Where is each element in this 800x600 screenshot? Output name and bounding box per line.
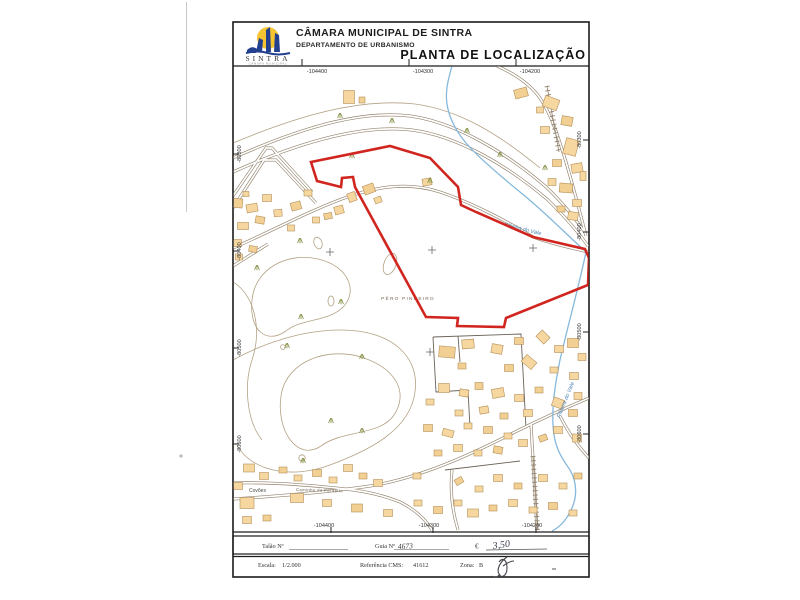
building <box>384 510 393 517</box>
building <box>246 203 258 213</box>
reference-label: Referência CMS: <box>360 562 403 569</box>
building <box>454 476 464 485</box>
grid-label-left: -80300 <box>237 145 243 162</box>
building <box>434 450 442 456</box>
grid-label-left: -80600 <box>237 435 243 452</box>
building <box>234 483 243 490</box>
stream-label-1: Ribeira do Vale <box>504 222 542 237</box>
building <box>244 464 255 472</box>
grid-cross-icon <box>428 246 436 254</box>
building <box>521 354 537 369</box>
grid-label-left: -80500 <box>237 339 243 356</box>
building <box>249 245 258 252</box>
building <box>468 509 479 517</box>
hatched-path-icon <box>533 86 559 530</box>
building <box>290 201 302 211</box>
grid-label-right: -80500 <box>577 323 583 340</box>
building <box>538 434 548 442</box>
building <box>288 225 295 231</box>
building <box>553 160 562 167</box>
building <box>494 475 503 482</box>
building <box>491 344 503 355</box>
tuft-icon <box>299 314 304 319</box>
building <box>491 388 504 399</box>
building <box>573 200 582 207</box>
building <box>291 494 304 503</box>
building <box>458 363 466 369</box>
building <box>475 486 483 492</box>
building <box>504 433 512 439</box>
building <box>255 216 265 224</box>
tuft-icon <box>329 418 334 423</box>
building <box>554 427 563 434</box>
building <box>313 217 320 223</box>
grid-cross-icon <box>529 244 537 252</box>
building <box>515 338 524 345</box>
building <box>569 510 577 516</box>
building <box>454 445 463 452</box>
building <box>574 473 582 479</box>
building <box>479 406 489 414</box>
building <box>434 507 443 514</box>
building <box>344 91 355 104</box>
building <box>263 195 272 202</box>
building <box>459 389 469 397</box>
building <box>549 503 558 510</box>
talao-label: Talão Nº <box>262 543 284 550</box>
grid-label-top: -104400 <box>307 69 328 75</box>
scanned-location-plan: SINTRA CÂMARA MUNICIPAL CÂMARA MUNICIPAL… <box>0 0 800 600</box>
building <box>243 517 252 524</box>
building <box>559 483 567 489</box>
building <box>514 483 522 489</box>
contour-lines <box>233 103 540 472</box>
building <box>464 423 472 429</box>
tuft-icon <box>543 165 548 170</box>
building <box>424 425 433 432</box>
building <box>442 428 454 438</box>
building <box>550 367 558 373</box>
building <box>580 172 586 181</box>
grid-label-right: -80600 <box>577 425 583 442</box>
building <box>455 410 463 416</box>
header: SINTRA CÂMARA MUNICIPAL CÂMARA MUNICIPAL… <box>245 26 586 66</box>
grid-cross-icon <box>426 348 434 356</box>
building <box>374 196 383 204</box>
building <box>493 446 503 454</box>
grid-label-right: -80400 <box>577 223 583 240</box>
grid-label-top: -104300 <box>413 69 434 75</box>
footer: Talão Nº Guia Nº 4673 € 3,50 Escala: 1/2… <box>233 536 589 577</box>
building <box>426 399 434 405</box>
building <box>515 395 524 402</box>
map-area: PÊRO PINHEIRO Covões Caminho do Perapito… <box>229 66 589 531</box>
building <box>279 467 287 473</box>
building <box>439 384 450 393</box>
building <box>541 127 550 134</box>
logo-tower-icon <box>256 38 263 52</box>
building <box>570 373 579 380</box>
building <box>344 465 353 472</box>
building <box>500 413 508 419</box>
building <box>413 473 421 479</box>
building <box>519 440 528 447</box>
building <box>229 198 243 208</box>
building <box>243 192 249 197</box>
grid-label-bottom: -104300 <box>419 523 440 529</box>
hamlet-label: Covões <box>249 488 266 494</box>
building <box>578 354 586 361</box>
tuft-icon <box>360 354 365 359</box>
building <box>263 515 271 521</box>
building <box>294 475 302 481</box>
signature-scribble <box>492 557 514 577</box>
building <box>334 205 345 215</box>
building <box>454 500 462 506</box>
department-subtitle: DEPARTAMENTO DE URBANISMO <box>296 42 415 49</box>
building <box>529 507 537 513</box>
building <box>548 179 556 186</box>
building <box>536 330 550 344</box>
building <box>524 410 533 417</box>
building <box>475 383 483 390</box>
scan-dot-artifact <box>179 454 182 457</box>
building <box>535 387 543 393</box>
building <box>323 500 332 507</box>
plan-title: PLANTA DE LOCALIZAÇÃO <box>400 47 586 62</box>
building <box>329 477 337 483</box>
tuft-icon <box>338 113 343 118</box>
parcel-boundary <box>311 146 589 327</box>
building <box>414 500 422 506</box>
building <box>260 473 269 480</box>
municipality-title: CÂMARA MUNICIPAL DE SINTRA <box>296 26 472 39</box>
building <box>561 116 573 127</box>
building <box>439 346 456 358</box>
building <box>484 427 493 434</box>
zone-value: B <box>479 562 483 569</box>
currency-symbol: € <box>475 543 479 551</box>
scale-value: 1/2.000 <box>282 562 301 569</box>
tuft-icon <box>301 458 306 463</box>
building <box>274 209 283 217</box>
building <box>359 97 365 103</box>
building <box>324 212 333 219</box>
grid-label-top: -104200 <box>520 69 541 75</box>
reference-value: 41612 <box>413 562 428 569</box>
tuft-icon <box>255 265 260 270</box>
sintra-logo: SINTRA CÂMARA MUNICIPAL <box>245 27 290 66</box>
building <box>489 505 497 511</box>
building <box>537 107 544 113</box>
building <box>474 450 482 456</box>
logo-tower-icon <box>274 33 280 52</box>
grid-label-bottom: -104400 <box>314 523 335 529</box>
building <box>509 500 518 507</box>
tuft-icon <box>339 299 344 304</box>
grid-label-bottom: -104200 <box>522 523 543 529</box>
building <box>557 206 565 212</box>
building <box>359 473 367 479</box>
building <box>240 498 254 509</box>
building <box>374 480 383 487</box>
building <box>559 183 573 193</box>
building <box>539 475 548 482</box>
plan-canvas: SINTRA CÂMARA MUNICIPAL CÂMARA MUNICIPAL… <box>0 0 800 600</box>
building <box>238 223 249 230</box>
building <box>555 346 564 353</box>
building <box>567 211 578 221</box>
grid-label-left: -80400 <box>237 242 243 259</box>
building <box>462 339 475 349</box>
building <box>574 393 582 400</box>
tuft-icon <box>390 118 395 123</box>
building <box>352 504 363 512</box>
tuft-icon <box>298 238 303 243</box>
building <box>514 87 529 99</box>
grid-cross-icon <box>326 248 334 256</box>
place-label: PÊRO PINHEIRO <box>381 294 435 302</box>
building <box>304 190 312 196</box>
building <box>505 365 514 372</box>
building <box>313 470 322 477</box>
guia-label: Guia Nº <box>375 543 395 550</box>
zone-label: Zona: <box>460 562 475 569</box>
scale-label: Escala: <box>258 562 276 569</box>
building <box>569 410 578 417</box>
grid-label-right: -80300 <box>577 131 583 148</box>
